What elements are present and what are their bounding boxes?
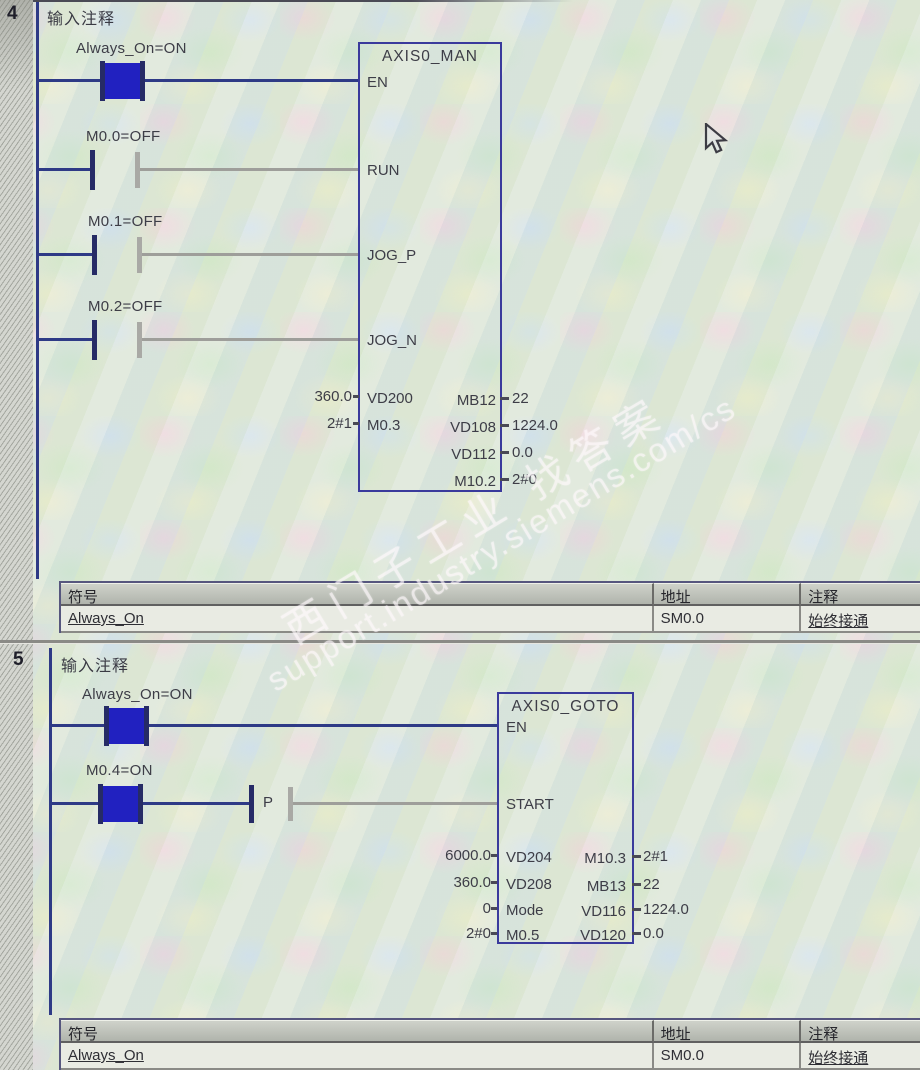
wire xyxy=(36,338,94,341)
block-output-pin: M10.3 xyxy=(546,850,626,867)
block-output-pin: VD116 xyxy=(546,903,626,920)
wire xyxy=(142,253,358,256)
contact-operand-label[interactable]: M0.4=ON xyxy=(86,762,153,779)
param-value[interactable]: 0.0 xyxy=(512,444,533,461)
block-param-pin: Mode xyxy=(506,902,544,919)
wire xyxy=(149,724,497,727)
network-comment[interactable]: 输入注释 xyxy=(47,5,115,29)
function-block-axis0-goto[interactable]: AXIS0_GOTO EN START VD204 VD208 Mode M0.… xyxy=(497,692,634,944)
block-output-pin: VD112 xyxy=(426,446,496,463)
comment-cell[interactable]: 始终接通 xyxy=(801,606,920,633)
param-value[interactable]: 1224.0 xyxy=(643,901,689,918)
param-tick xyxy=(491,907,497,910)
network-number: 5 xyxy=(13,649,24,671)
symbol-name-cell[interactable]: Always_On xyxy=(61,606,654,633)
symbol-table-row[interactable]: Always_On SM0.0 始终接通 xyxy=(61,606,920,633)
param-tick xyxy=(632,932,641,935)
symbol-name-cell[interactable]: Always_On xyxy=(61,1043,654,1070)
param-value[interactable]: 6000.0 xyxy=(421,847,491,864)
ladder-editor-screen: 4 输入注释 Always_On=ON M0.0=OFF M0.1=OFF M0… xyxy=(0,0,920,1070)
block-output-pin: M10.2 xyxy=(426,473,496,490)
param-tick xyxy=(500,451,509,454)
contact-operand-label[interactable]: M0.0=OFF xyxy=(86,128,161,145)
network-comment[interactable]: 输入注释 xyxy=(61,652,129,676)
block-input-pin: JOG_N xyxy=(367,332,417,349)
param-value[interactable]: 22 xyxy=(643,876,660,893)
param-tick xyxy=(500,478,509,481)
contact-left-bar[interactable] xyxy=(92,235,97,275)
edge-contact-label[interactable]: P xyxy=(263,794,273,811)
network-separator xyxy=(0,640,920,644)
param-tick xyxy=(632,883,641,886)
contact-operand-label[interactable]: M0.2=OFF xyxy=(88,298,163,315)
block-title: AXIS0_GOTO xyxy=(499,698,632,716)
param-value[interactable]: 1224.0 xyxy=(512,417,558,434)
param-value[interactable]: 22 xyxy=(512,390,529,407)
address-column-header[interactable]: 地址 xyxy=(654,1020,802,1043)
wire xyxy=(49,724,106,727)
block-input-pin: EN xyxy=(506,719,527,736)
block-output-pin: MB13 xyxy=(546,878,626,895)
block-output-pin: MB12 xyxy=(426,392,496,409)
param-tick xyxy=(500,424,509,427)
wire xyxy=(293,802,497,805)
wire xyxy=(145,79,358,82)
param-tick xyxy=(491,881,497,884)
network-number-gutter xyxy=(0,0,33,1070)
block-input-pin: JOG_P xyxy=(367,247,416,264)
address-cell[interactable]: SM0.0 xyxy=(654,1043,802,1070)
wire xyxy=(143,802,249,805)
address-column-header[interactable]: 地址 xyxy=(654,583,802,606)
contact-powered-box[interactable] xyxy=(103,786,138,822)
edge-contact-left-bar[interactable] xyxy=(249,785,254,823)
param-tick xyxy=(632,908,641,911)
param-value[interactable]: 2#1 xyxy=(643,848,668,865)
contact-operand-label[interactable]: Always_On=ON xyxy=(82,686,193,703)
block-input-pin: RUN xyxy=(367,162,400,179)
contact-operand-label[interactable]: Always_On=ON xyxy=(76,40,187,57)
param-value[interactable]: 0.0 xyxy=(643,925,664,942)
wire xyxy=(36,253,94,256)
param-value[interactable]: 2#0 xyxy=(421,925,491,942)
block-title: AXIS0_MAN xyxy=(360,48,500,66)
wire xyxy=(49,802,100,805)
block-param-pin: VD208 xyxy=(506,876,552,893)
wire xyxy=(36,168,92,171)
symbol-column-header[interactable]: 符号 xyxy=(61,1020,654,1043)
symbol-table: 符号 地址 注释 Always_On SM0.0 始终接通 xyxy=(59,581,920,633)
param-value[interactable]: 360.0 xyxy=(292,388,352,405)
block-input-pin: START xyxy=(506,796,554,813)
param-tick xyxy=(632,855,641,858)
previous-network-separator xyxy=(33,0,573,2)
block-param-pin: VD204 xyxy=(506,849,552,866)
symbol-table: 符号 地址 注释 Always_On SM0.0 始终接通 xyxy=(59,1018,920,1070)
param-tick xyxy=(353,422,359,425)
param-tick xyxy=(500,397,509,400)
symbol-table-header: 符号 地址 注释 xyxy=(61,1020,920,1043)
block-output-pin: VD108 xyxy=(426,419,496,436)
param-value[interactable]: 2#1 xyxy=(292,415,352,432)
param-tick xyxy=(491,932,497,935)
mouse-cursor-icon xyxy=(703,123,731,160)
block-output-pin: VD120 xyxy=(546,927,626,944)
power-rail xyxy=(49,648,52,1015)
wire xyxy=(140,168,358,171)
param-value[interactable]: 2#0 xyxy=(512,471,537,488)
block-param-pin: VD200 xyxy=(367,390,413,407)
comment-cell[interactable]: 始终接通 xyxy=(801,1043,920,1070)
symbol-column-header[interactable]: 符号 xyxy=(61,583,654,606)
comment-column-header[interactable]: 注释 xyxy=(801,583,920,606)
param-value[interactable]: 0 xyxy=(421,900,491,917)
network-number: 4 xyxy=(7,3,18,25)
symbol-table-header: 符号 地址 注释 xyxy=(61,583,920,606)
contact-operand-label[interactable]: M0.1=OFF xyxy=(88,213,163,230)
power-rail xyxy=(36,2,39,579)
symbol-table-row[interactable]: Always_On SM0.0 始终接通 xyxy=(61,1043,920,1070)
wire xyxy=(36,79,102,82)
contact-left-bar[interactable] xyxy=(92,320,97,360)
param-tick xyxy=(353,395,359,398)
contact-powered-box[interactable] xyxy=(109,708,144,744)
contact-left-bar[interactable] xyxy=(90,150,95,190)
block-input-pin: EN xyxy=(367,74,388,91)
block-param-pin: M0.3 xyxy=(367,417,400,434)
param-value[interactable]: 360.0 xyxy=(421,874,491,891)
address-cell[interactable]: SM0.0 xyxy=(654,606,802,633)
block-param-pin: M0.5 xyxy=(506,927,539,944)
contact-powered-box[interactable] xyxy=(105,63,140,99)
function-block-axis0-man[interactable]: AXIS0_MAN EN RUN JOG_P JOG_N VD200 M0.3 … xyxy=(358,42,502,492)
wire xyxy=(142,338,358,341)
comment-column-header[interactable]: 注释 xyxy=(801,1020,920,1043)
param-tick xyxy=(491,854,497,857)
